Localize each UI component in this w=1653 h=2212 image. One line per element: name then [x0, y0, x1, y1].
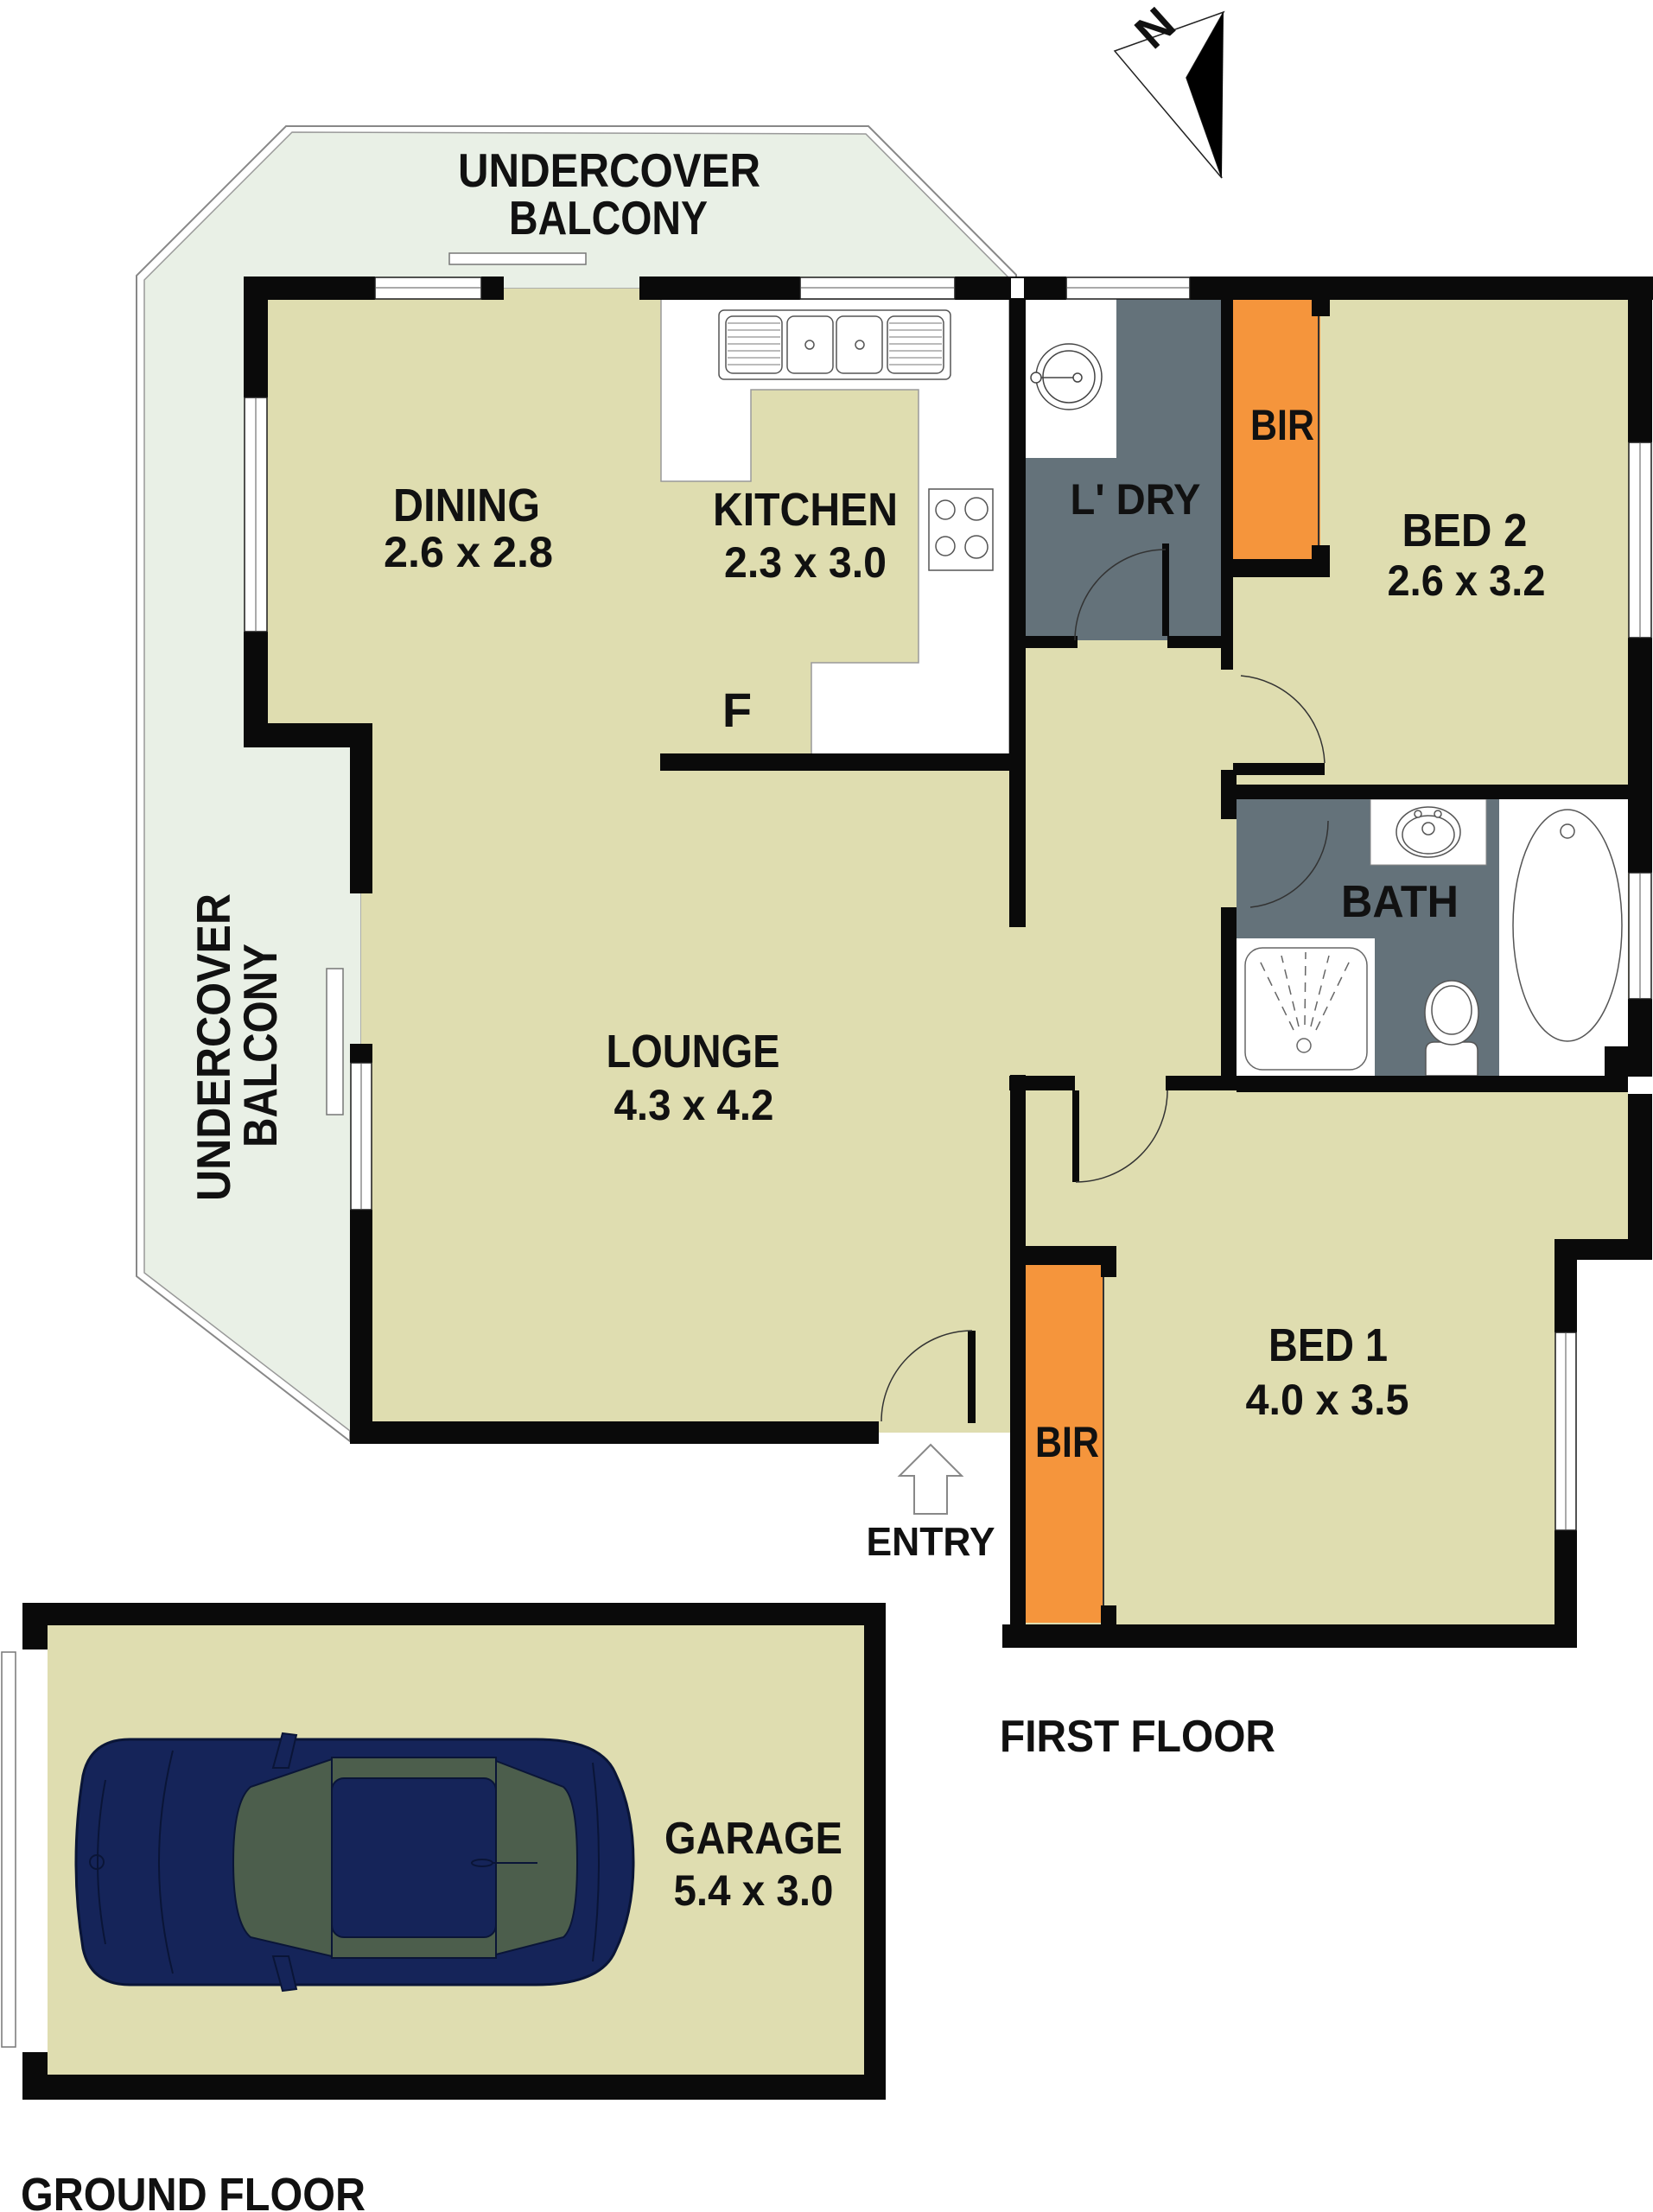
svg-text:ENTRY: ENTRY	[867, 1519, 995, 1564]
svg-text:L' DRY: L' DRY	[1071, 475, 1201, 524]
svg-text:GROUND FLOOR: GROUND FLOOR	[21, 2169, 366, 2212]
svg-text:FIRST FLOOR: FIRST FLOOR	[1000, 1712, 1275, 1762]
svg-text:2.3 x 3.0: 2.3 x 3.0	[724, 538, 887, 587]
svg-text:4.3 x 4.2: 4.3 x 4.2	[614, 1081, 774, 1129]
svg-text:2.6 x 3.2: 2.6 x 3.2	[1388, 556, 1546, 605]
svg-text:2.6 x 2.8: 2.6 x 2.8	[384, 528, 553, 576]
svg-text:4.0 x 3.5: 4.0 x 3.5	[1246, 1376, 1409, 1424]
svg-text:LOUNGE: LOUNGE	[607, 1026, 780, 1077]
svg-text:F: F	[722, 683, 752, 737]
svg-text:BED 2: BED 2	[1402, 505, 1528, 556]
svg-text:DINING: DINING	[393, 480, 540, 531]
svg-text:BALCONY: BALCONY	[233, 944, 287, 1147]
svg-text:GARAGE: GARAGE	[664, 1814, 842, 1864]
svg-text:BIR: BIR	[1250, 401, 1314, 449]
svg-text:BIR: BIR	[1035, 1418, 1099, 1466]
svg-text:UNDERCOVER: UNDERCOVER	[458, 143, 760, 197]
svg-text:BATH: BATH	[1341, 877, 1459, 927]
svg-text:UNDERCOVER: UNDERCOVER	[187, 893, 240, 1201]
svg-text:BALCONY: BALCONY	[509, 191, 708, 245]
svg-text:KITCHEN: KITCHEN	[713, 484, 898, 536]
svg-text:5.4 x 3.0: 5.4 x 3.0	[674, 1866, 834, 1915]
svg-text:BED 1: BED 1	[1268, 1319, 1388, 1371]
